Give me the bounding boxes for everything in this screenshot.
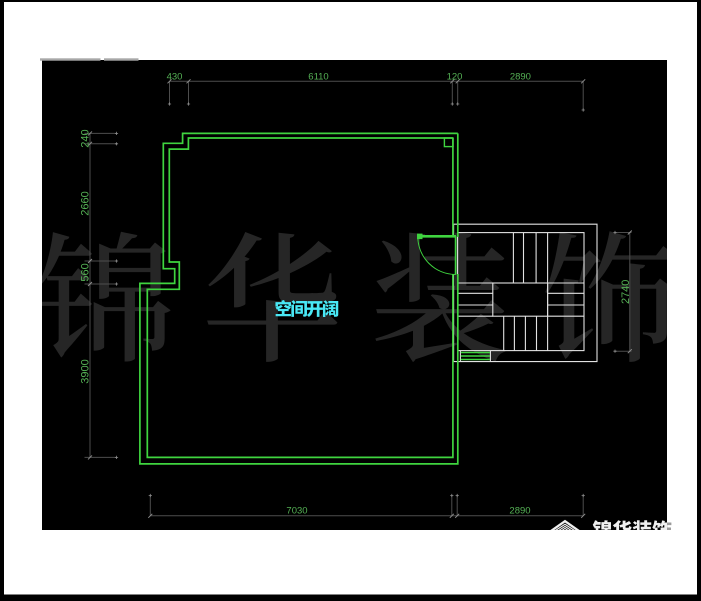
svg-text:560: 560 xyxy=(79,263,91,281)
svg-text:7030: 7030 xyxy=(286,506,307,517)
svg-text:2660: 2660 xyxy=(79,191,91,215)
svg-text:2890: 2890 xyxy=(509,506,530,517)
svg-text:240: 240 xyxy=(79,129,91,147)
svg-text:120: 120 xyxy=(447,72,463,83)
svg-text:3900: 3900 xyxy=(79,359,91,383)
svg-text:2740: 2740 xyxy=(620,280,632,304)
svg-text:430: 430 xyxy=(167,72,183,83)
svg-text:2890: 2890 xyxy=(510,72,531,83)
svg-text:6110: 6110 xyxy=(308,72,328,83)
